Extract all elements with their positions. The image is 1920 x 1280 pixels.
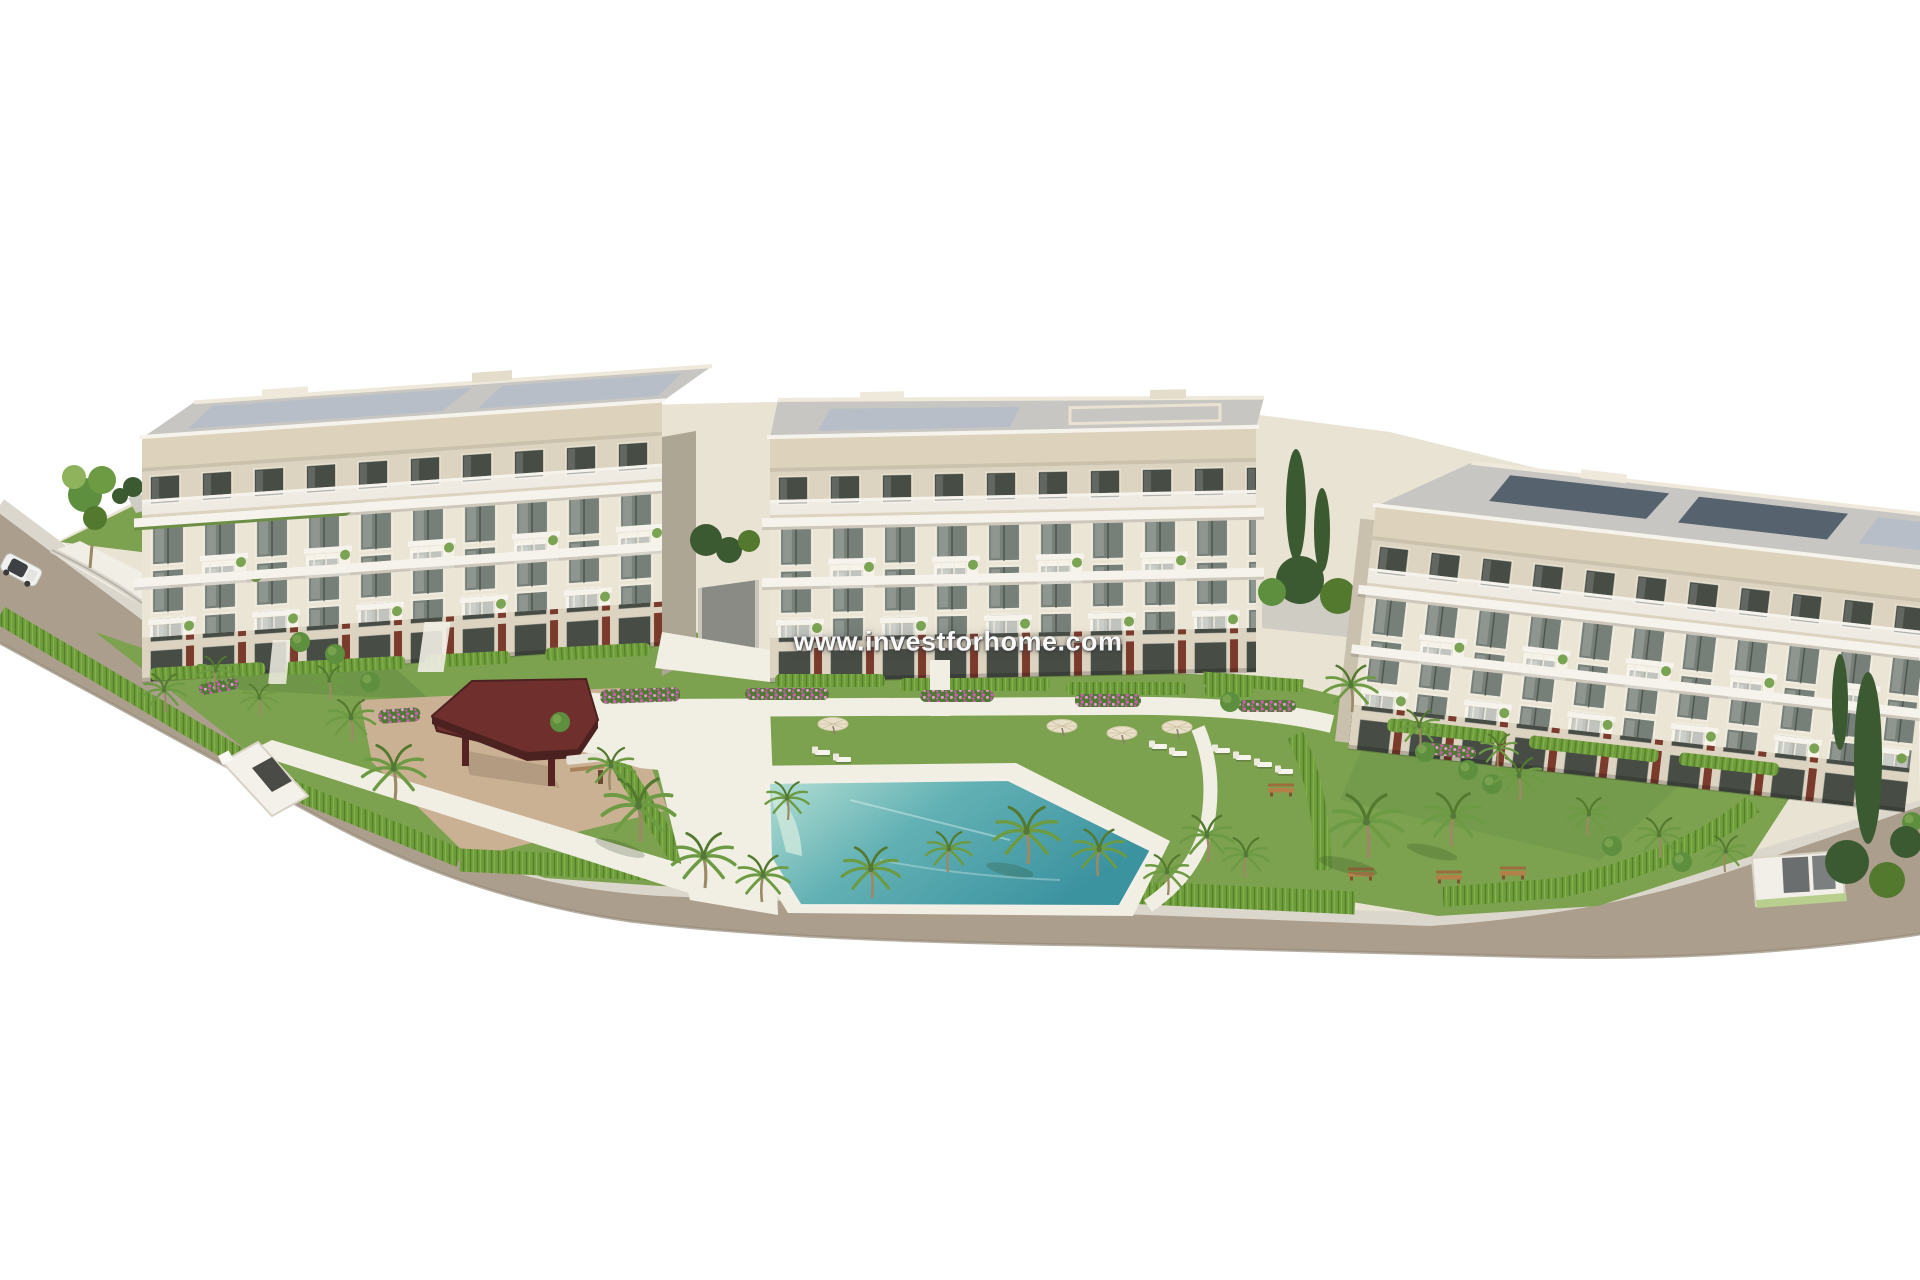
bush <box>1415 742 1435 762</box>
bush <box>1220 692 1240 712</box>
bush <box>325 644 345 664</box>
bush <box>360 672 380 692</box>
bush <box>1458 760 1478 780</box>
bush <box>290 632 310 652</box>
bush <box>1602 836 1622 856</box>
building-middle <box>762 384 1264 684</box>
render-canvas: www.investforhome.com <box>0 0 1920 1280</box>
bush <box>1482 774 1502 794</box>
bush <box>1672 852 1692 872</box>
bush <box>550 712 570 732</box>
roof-panels <box>818 405 1020 431</box>
architectural-render <box>0 0 1920 1280</box>
